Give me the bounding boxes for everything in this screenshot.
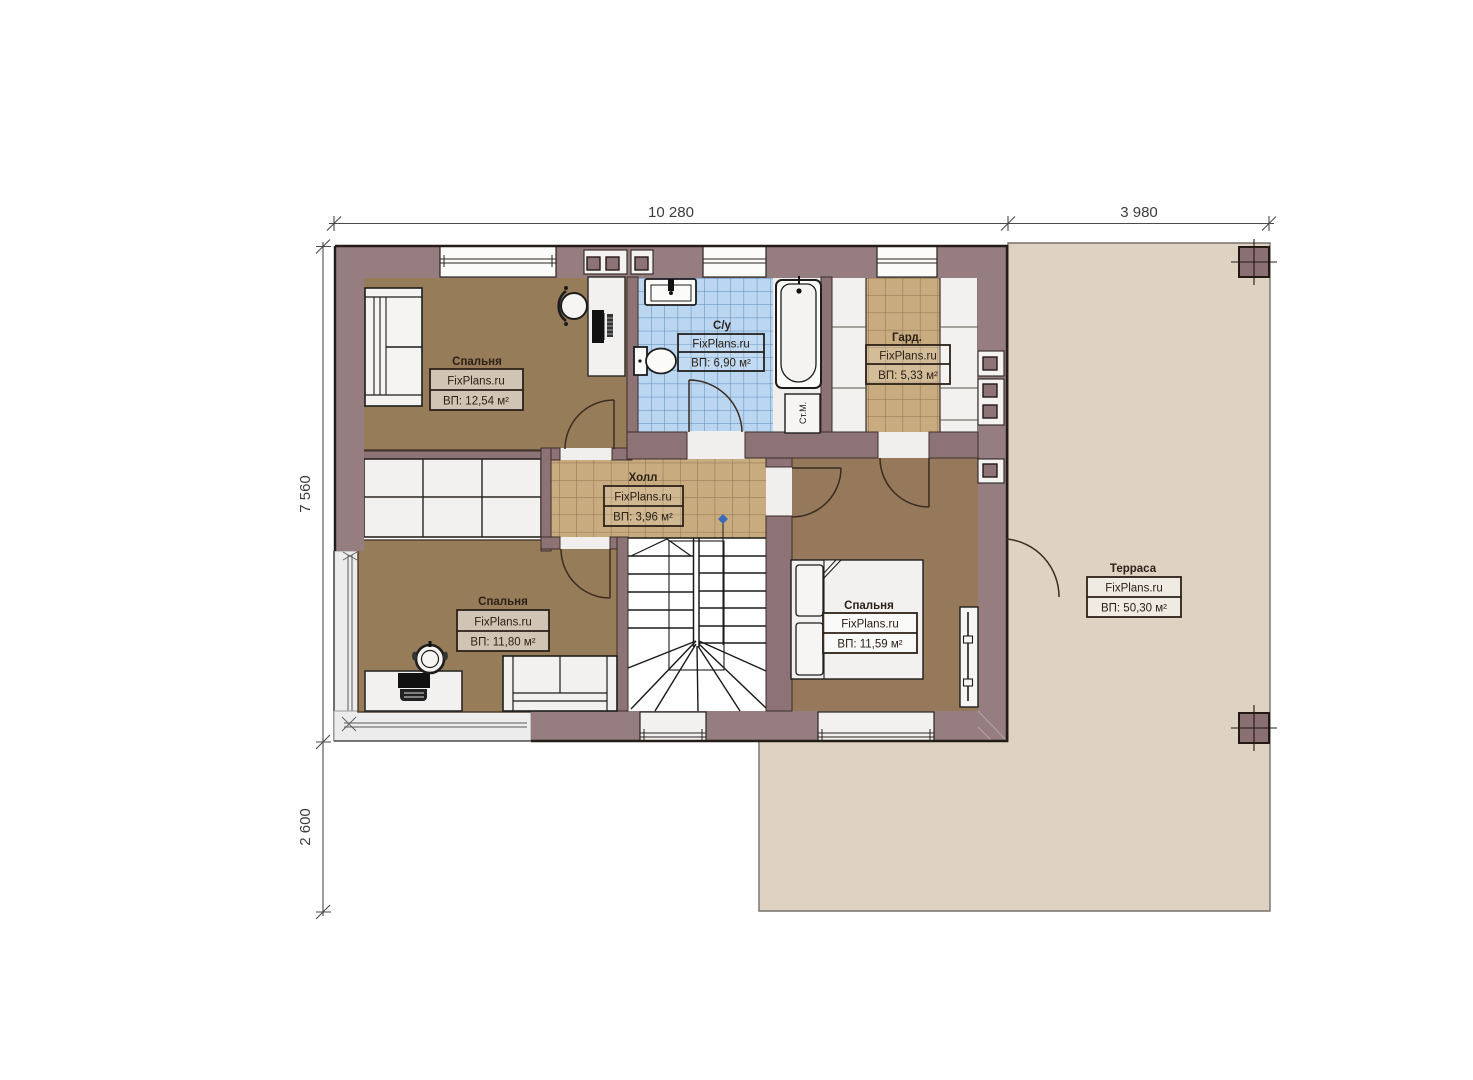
- svg-text:FixPlans.ru: FixPlans.ru: [879, 351, 937, 363]
- svg-text:FixPlans.ru: FixPlans.ru: [1105, 583, 1163, 595]
- svg-text:FixPlans.ru: FixPlans.ru: [841, 619, 899, 631]
- svg-text:ВП: 11,59 м²: ВП: 11,59 м²: [837, 639, 902, 651]
- svg-text:Ст.М.: Ст.М.: [798, 402, 808, 424]
- svg-text:Терраса: Терраса: [1110, 563, 1157, 575]
- svg-text:ВП: 11,80 м²: ВП: 11,80 м²: [470, 637, 535, 649]
- svg-text:10 280: 10 280: [648, 204, 694, 221]
- svg-text:FixPlans.ru: FixPlans.ru: [447, 376, 505, 388]
- svg-text:Спальня: Спальня: [844, 600, 894, 612]
- svg-text:2 600: 2 600: [297, 808, 314, 846]
- svg-text:7 560: 7 560: [297, 475, 314, 513]
- svg-text:3 980: 3 980: [1120, 204, 1158, 221]
- svg-text:FixPlans.ru: FixPlans.ru: [474, 617, 532, 629]
- svg-text:ВП: 5,33 м²: ВП: 5,33 м²: [878, 370, 938, 382]
- svg-text:C/y: C/y: [713, 320, 732, 332]
- svg-text:Спальня: Спальня: [452, 356, 502, 368]
- svg-text:ВП: 50,30 м²: ВП: 50,30 м²: [1101, 603, 1167, 615]
- svg-text:Гард.: Гард.: [892, 332, 922, 344]
- svg-text:ВП: 6,90 м²: ВП: 6,90 м²: [691, 358, 751, 370]
- svg-text:Спальня: Спальня: [478, 596, 528, 608]
- svg-text:ВП: 3,96 м²: ВП: 3,96 м²: [613, 512, 673, 524]
- svg-text:Холл: Холл: [629, 472, 658, 484]
- svg-text:FixPlans.ru: FixPlans.ru: [692, 339, 750, 351]
- svg-text:FixPlans.ru: FixPlans.ru: [614, 492, 672, 504]
- svg-text:ВП: 12,54 м²: ВП: 12,54 м²: [443, 396, 509, 408]
